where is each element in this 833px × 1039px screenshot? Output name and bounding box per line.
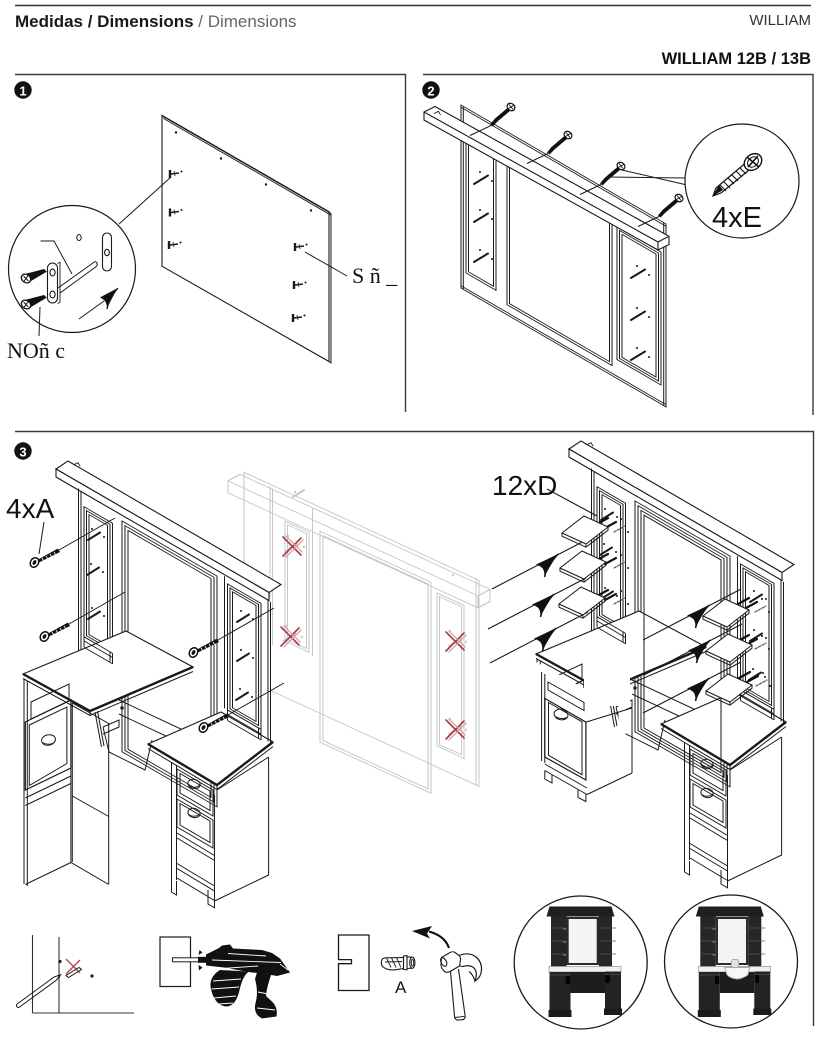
svg-text:4xE: 4xE: [712, 202, 762, 234]
svg-text:NOñ c: NOñ c: [7, 338, 65, 363]
svg-text:S ñ _: S ñ _: [352, 263, 398, 288]
svg-text:Medidas / Dimensions / Dimensi: Medidas / Dimensions / Dimensions: [15, 12, 297, 31]
svg-text:12xD: 12xD: [492, 470, 557, 501]
svg-text:WILLIAM 12B / 13B: WILLIAM 12B / 13B: [662, 50, 812, 68]
svg-text:3: 3: [19, 445, 26, 460]
svg-text:1: 1: [19, 84, 26, 99]
svg-text:2: 2: [427, 84, 434, 99]
svg-text:4xA: 4xA: [6, 493, 55, 524]
svg-text:WILLIAM: WILLIAM: [749, 12, 811, 29]
svg-text:A: A: [395, 978, 407, 997]
